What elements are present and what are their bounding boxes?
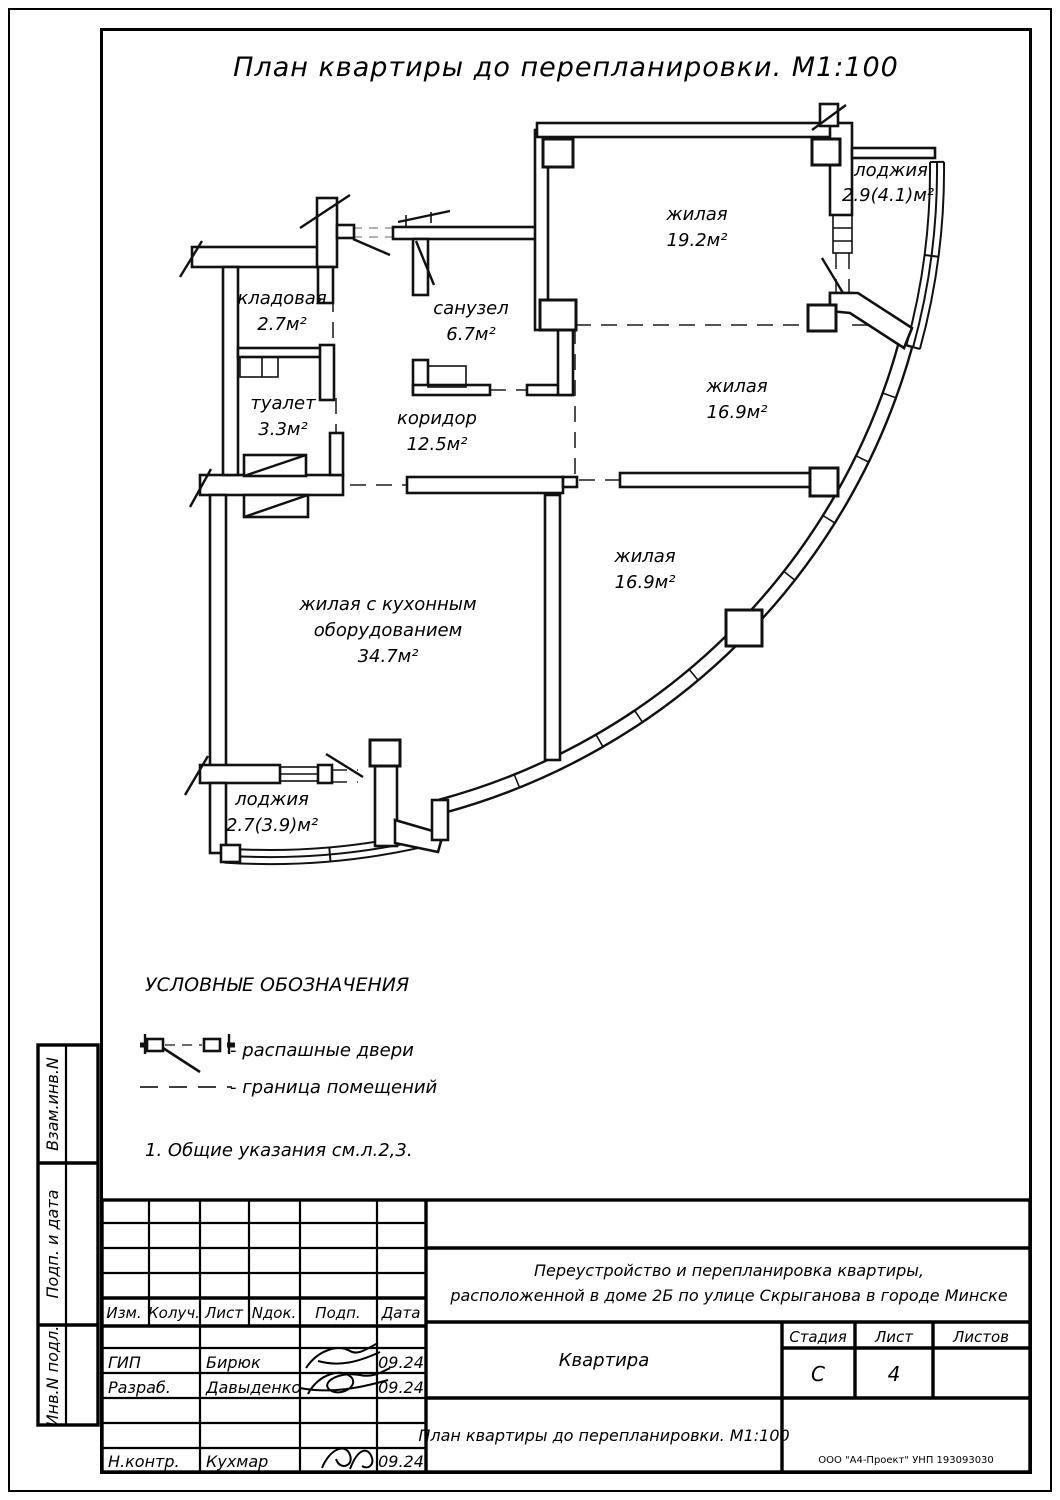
room-label-tualet: туалет 3.3м² <box>250 393 316 440</box>
side-stamp-label: Инв.N подл. <box>43 1326 62 1427</box>
room-name: жилая <box>613 546 675 567</box>
room-name: жилая <box>665 204 727 225</box>
general-note: 1. Общие указания см.л.2,3. <box>145 1140 413 1161</box>
object-name: Квартира <box>559 1350 649 1371</box>
room-area: 2.7(3.9)м² <box>226 815 318 836</box>
col-podp: Подп. <box>315 1304 360 1322</box>
room-label-koridor: коридор 12.5м² <box>397 408 477 455</box>
legend-item-room-boundary: - граница помещений <box>230 1077 437 1098</box>
room-name: коридор <box>397 408 477 429</box>
room-label-zhilaya-19: жилая 19.2м² <box>665 204 727 251</box>
col-ndok: Nдок. <box>252 1304 297 1322</box>
curved-window-wall <box>439 343 913 813</box>
room-name: лоджия <box>853 160 928 181</box>
room-name: жилая с кухонным <box>298 594 476 615</box>
room-name: лоджия <box>234 789 309 810</box>
staff-date: 09.24 <box>378 1452 424 1471</box>
room-area: 6.7м² <box>446 324 495 345</box>
room-name: санузел <box>433 298 509 319</box>
room-label-zhilaya-kitchen: жилая с кухонным оборудованием 34.7м² <box>298 594 476 667</box>
sheet-label: Лист <box>874 1328 914 1346</box>
doc-title: План квартиры до перепланировки. М1:100 <box>418 1426 789 1445</box>
page-title: План квартиры до перепланировки. М1:100 <box>100 52 1032 83</box>
side-stamp-label: Взам.инв.N <box>43 1057 62 1151</box>
sheets-label: Листов <box>952 1328 1009 1346</box>
company-name: ООО "А4-Проект" УНП 193093030 <box>818 1455 994 1466</box>
title-block: Изм. Колуч. Лист Nдок. Подп. Дата ГИП Би… <box>100 1198 1032 1474</box>
drawing-sheet: План квартиры до перепланировки. М1:100 <box>0 0 1060 1500</box>
room-name-line2: оборудованием <box>314 620 462 641</box>
room-area: 16.9м² <box>615 572 676 593</box>
side-stamp: Взам.инв.N Подп. и дата Инв.N подл. <box>36 1043 100 1427</box>
room-area: 2.7м² <box>257 314 306 335</box>
project-line2: расположенной в доме 2Б по улице Скрыган… <box>449 1286 1008 1305</box>
room-name: туалет <box>250 393 316 414</box>
room-area: 3.3м² <box>258 419 307 440</box>
sheet-number: 4 <box>888 1362 901 1386</box>
room-area: 19.2м² <box>667 230 728 251</box>
staff-name: Бирюк <box>206 1353 261 1372</box>
room-label-loggia-top: лоджия 2.9(4.1)м² <box>842 160 934 206</box>
project-line1: Переустройство и перепланировка квартиры… <box>534 1261 924 1280</box>
staff-date: 09.24 <box>378 1353 424 1372</box>
staff-name: Кухмар <box>206 1452 268 1471</box>
room-label-loggia-bottom: лоджия 2.7(3.9)м² <box>226 789 318 836</box>
room-label-kladovaya: кладовая 2.7м² <box>237 288 327 335</box>
door-leaf-symbols <box>326 211 843 777</box>
staff-role: ГИП <box>108 1353 141 1372</box>
legend-heading: УСЛОВНЫЕ ОБОЗНАЧЕНИЯ <box>145 974 409 996</box>
room-name: кладовая <box>237 288 327 309</box>
side-stamp-label: Подп. и дата <box>43 1190 62 1299</box>
room-boundary-legend-icon <box>140 1080 235 1094</box>
floor-plan: жилая 19.2м² лоджия 2.9(4.1)м² жилая 16.… <box>140 95 1020 885</box>
stage-label: Стадия <box>789 1328 847 1346</box>
staff-name: Давыденко <box>205 1378 301 1397</box>
room-area: 2.9(4.1)м² <box>842 185 934 206</box>
room-area: 16.9м² <box>707 402 768 423</box>
swing-door-legend-icon <box>140 1032 235 1076</box>
room-label-zhilaya-169-upper: жилая 16.9м² <box>705 376 767 423</box>
room-area: 34.7м² <box>358 646 419 667</box>
col-list: Лист <box>204 1304 244 1322</box>
room-label-zhilaya-169-lower: жилая 16.9м² <box>613 546 675 593</box>
col-data: Дата <box>381 1304 421 1322</box>
staff-role: Разраб. <box>108 1378 171 1397</box>
room-area: 12.5м² <box>407 434 468 455</box>
room-label-sanuzel: санузел 6.7м² <box>433 298 509 345</box>
room-name: жилая <box>705 376 767 397</box>
stage-value: С <box>811 1362 825 1386</box>
col-izm: Изм. <box>106 1304 141 1322</box>
legend-item-swing-doors: - распашные двери <box>230 1040 414 1061</box>
col-kol: Колуч. <box>148 1304 200 1322</box>
staff-role: Н.контр. <box>108 1452 180 1471</box>
